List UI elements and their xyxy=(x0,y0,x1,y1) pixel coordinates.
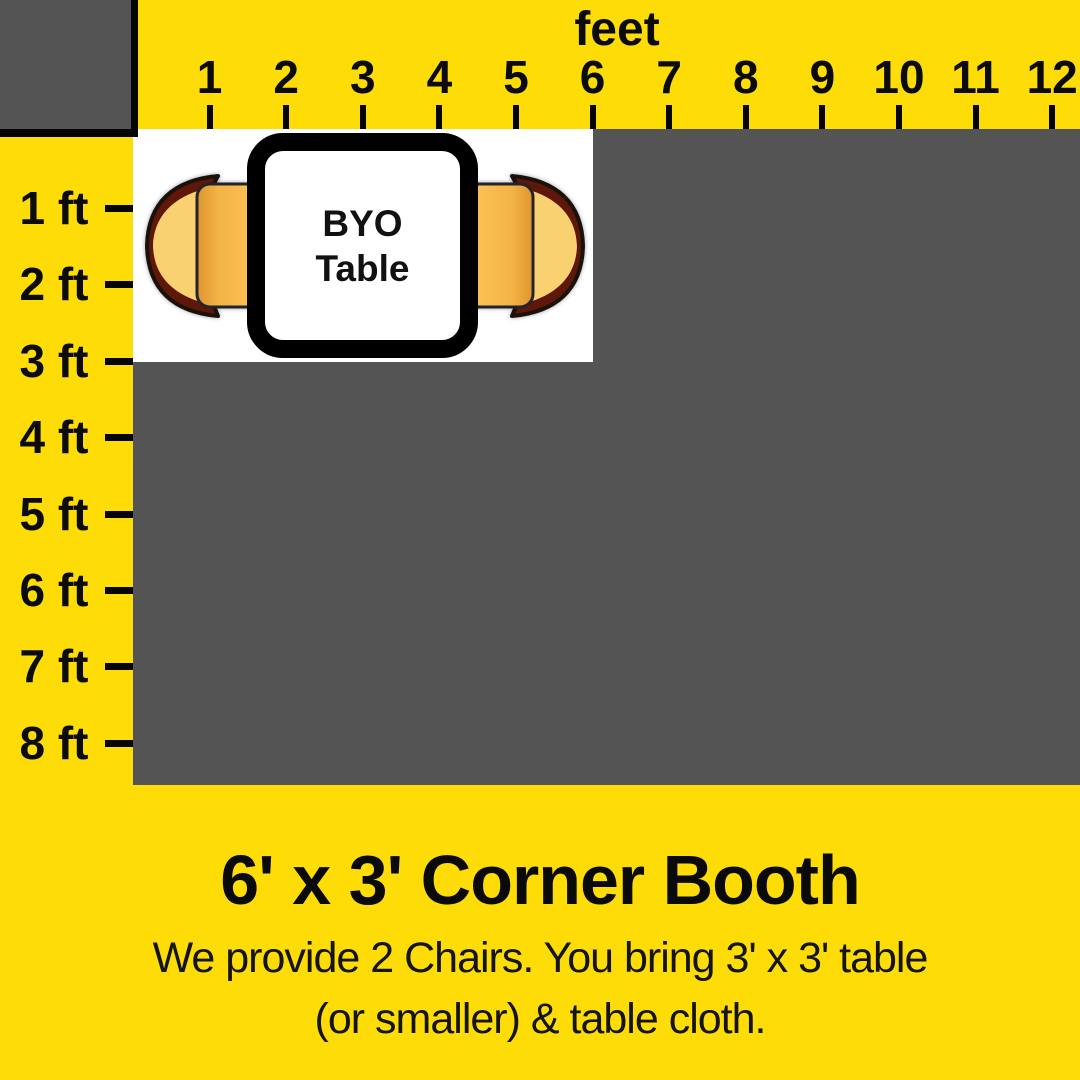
top-ruler-number-7: 7 xyxy=(629,54,709,100)
top-ruler-tick-5 xyxy=(513,105,519,129)
top-ruler-number-10: 10 xyxy=(859,54,939,100)
top-ruler-number-1: 1 xyxy=(170,54,250,100)
top-ruler-number-12: 12 xyxy=(1012,54,1080,100)
top-ruler-tick-2 xyxy=(283,105,289,129)
left-ruler-label-3ft: 3 ft xyxy=(8,337,100,385)
booth-size-diagram: feet 123456789101112 1 ft2 ft3 ft4 ft5 f… xyxy=(0,0,1080,1080)
top-ruler-number-4: 4 xyxy=(399,54,479,100)
top-ruler-number-3: 3 xyxy=(323,54,403,100)
top-ruler-number-2: 2 xyxy=(246,54,326,100)
top-ruler-tick-9 xyxy=(819,105,825,129)
caption-subtitle-line2: (or smaller) & table cloth. xyxy=(0,989,1080,1050)
caption-subtitle-line1: We provide 2 Chairs. You bring 3' x 3' t… xyxy=(0,928,1080,989)
top-ruler-number-5: 5 xyxy=(476,54,556,100)
top-ruler-number-9: 9 xyxy=(782,54,862,100)
left-ruler-label-7ft: 7 ft xyxy=(8,642,100,690)
top-ruler-number-6: 6 xyxy=(553,54,633,100)
top-ruler-tick-10 xyxy=(896,105,902,129)
left-ruler-tick-1ft xyxy=(105,205,133,212)
left-ruler-tick-7ft xyxy=(105,663,133,670)
top-ruler-tick-4 xyxy=(436,105,442,129)
left-ruler-label-2ft: 2 ft xyxy=(8,260,100,308)
top-ruler-number-11: 11 xyxy=(936,54,1016,100)
left-ruler-label-5ft: 5 ft xyxy=(8,490,100,538)
caption-subtitle: We provide 2 Chairs. You bring 3' x 3' t… xyxy=(0,928,1080,1050)
top-ruler-tick-8 xyxy=(743,105,749,129)
left-ruler-tick-2ft xyxy=(105,281,133,288)
byo-table: BYO Table xyxy=(247,133,478,358)
left-ruler-label-4ft: 4 ft xyxy=(8,413,100,461)
ruler-corner-block xyxy=(0,0,138,137)
left-ruler-tick-8ft xyxy=(105,740,133,747)
top-ruler-tick-3 xyxy=(360,105,366,129)
byo-table-label-line2: Table xyxy=(316,246,410,291)
left-ruler-tick-6ft xyxy=(105,587,133,594)
left-ruler-label-1ft: 1 ft xyxy=(8,184,100,232)
left-ruler-tick-5ft xyxy=(105,511,133,518)
caption-title: 6' x 3' Corner Booth xyxy=(0,840,1080,920)
left-ruler-label-8ft: 8 ft xyxy=(8,719,100,767)
left-ruler-tick-3ft xyxy=(105,358,133,365)
top-ruler-tick-12 xyxy=(1049,105,1055,129)
byo-table-label-line1: BYO xyxy=(322,201,402,246)
left-ruler-tick-4ft xyxy=(105,434,133,441)
top-ruler-tick-7 xyxy=(666,105,672,129)
top-ruler-tick-6 xyxy=(590,105,596,129)
top-ruler-tick-11 xyxy=(973,105,979,129)
left-ruler-label-6ft: 6 ft xyxy=(8,566,100,614)
top-ruler-tick-1 xyxy=(207,105,213,129)
top-ruler-number-8: 8 xyxy=(706,54,786,100)
top-ruler-unit-label: feet xyxy=(537,2,697,57)
